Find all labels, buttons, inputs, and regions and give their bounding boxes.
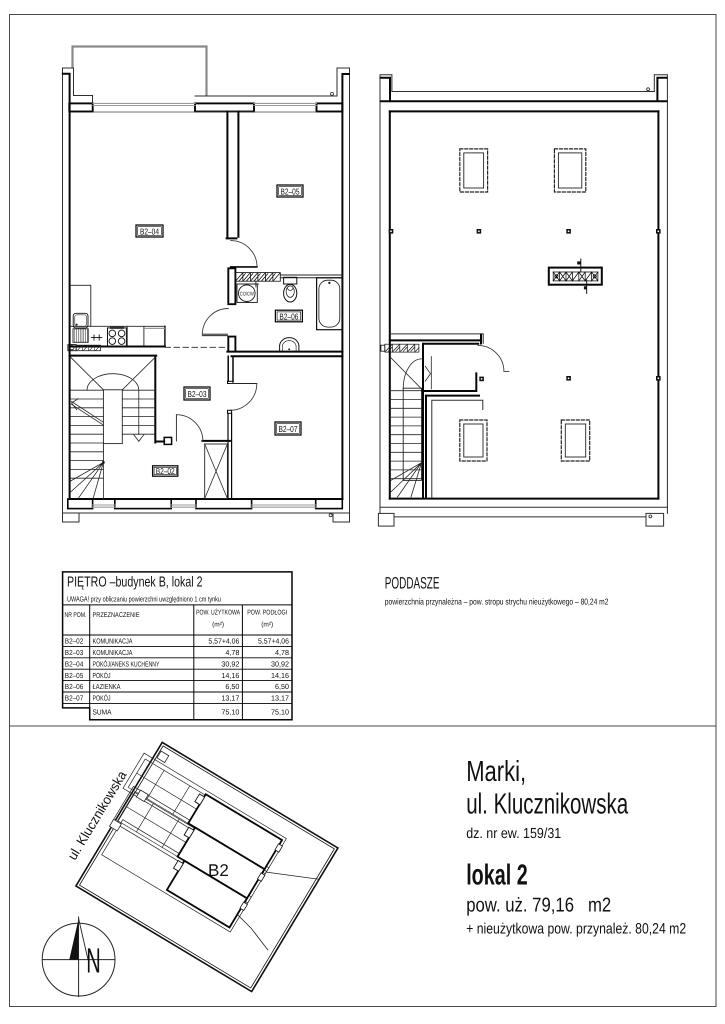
- svg-text:B2–07: B2–07: [65, 694, 84, 703]
- svg-text:B2–02: B2–02: [65, 637, 84, 646]
- svg-text:14,16: 14,16: [221, 671, 239, 680]
- svg-text:ul. Klucznikowska: ul. Klucznikowska: [466, 789, 629, 821]
- svg-text:PODDASZE: PODDASZE: [385, 575, 440, 593]
- svg-text:POW. PODŁOGI: POW. PODŁOGI: [247, 610, 287, 617]
- svg-text:30,92: 30,92: [271, 659, 289, 668]
- svg-text:B2–04: B2–04: [140, 226, 159, 236]
- svg-text:B2: B2: [208, 861, 229, 880]
- svg-text:POKÓJ/ANEKS KUCHENNY: POKÓJ/ANEKS KUCHENNY: [93, 659, 160, 668]
- svg-text:(m²): (m²): [261, 622, 273, 629]
- svg-text:B2–03: B2–03: [188, 389, 207, 399]
- svg-text:CO/CW: CO/CW: [240, 291, 255, 297]
- svg-text:POW. UŻYTKOWA: POW. UŻYTKOWA: [196, 609, 240, 617]
- svg-text:B2–02: B2–02: [156, 466, 175, 476]
- svg-text:5,57+4,06: 5,57+4,06: [208, 637, 239, 646]
- svg-text:lokal 2: lokal 2: [466, 860, 528, 892]
- svg-text:pow. uż. 79,16 m2: pow. uż. 79,16 m2: [466, 895, 611, 917]
- svg-text:4,78: 4,78: [275, 648, 289, 657]
- svg-text:6,50: 6,50: [275, 682, 289, 691]
- svg-text:13,17: 13,17: [271, 694, 289, 703]
- svg-text:B2–04: B2–04: [65, 659, 84, 668]
- svg-text:dz. nr ew. 159/31: dz. nr ew. 159/31: [466, 826, 561, 842]
- svg-text:+ nieużytkowa pow. przynależ.: + nieużytkowa pow. przynależ. 80,24 m2: [466, 921, 686, 938]
- svg-text:PRZEZNACZENIE: PRZEZNACZENIE: [93, 612, 140, 619]
- svg-text:ŁAZIENKA: ŁAZIENKA: [93, 682, 121, 691]
- svg-text:NR POM.: NR POM.: [65, 612, 87, 619]
- svg-text:14,16: 14,16: [271, 671, 289, 680]
- svg-text:B2–06: B2–06: [65, 682, 84, 691]
- svg-text:B2–05: B2–05: [65, 671, 84, 680]
- svg-text:Marki,: Marki,: [466, 756, 526, 788]
- svg-text:30,92: 30,92: [221, 659, 239, 668]
- svg-text:B2–03: B2–03: [65, 648, 84, 657]
- svg-text:powierzchnia przynależna – pow: powierzchnia przynależna – pow. stropu s…: [385, 597, 609, 607]
- svg-text:6,50: 6,50: [225, 682, 239, 691]
- svg-text:75,10: 75,10: [271, 708, 289, 717]
- svg-text:POKÓJ: POKÓJ: [93, 694, 111, 703]
- svg-text:75,10: 75,10: [221, 708, 239, 717]
- svg-text:POKÓJ: POKÓJ: [93, 671, 111, 680]
- svg-text:13,17: 13,17: [221, 694, 239, 703]
- svg-text:B2–05: B2–05: [281, 186, 300, 196]
- svg-text:UWAGA! przy obliczaniu powierz: UWAGA! przy obliczaniu powierzchni uwzgl…: [67, 595, 221, 604]
- svg-text:4,78: 4,78: [225, 648, 239, 657]
- svg-text:SUMA: SUMA: [93, 708, 112, 717]
- svg-text:PIĘTRO –budynek B, lokal 2: PIĘTRO –budynek B, lokal 2: [67, 575, 203, 591]
- svg-text:B2–06: B2–06: [279, 311, 298, 321]
- svg-text:N: N: [86, 942, 101, 981]
- svg-text:B2–07: B2–07: [279, 424, 298, 434]
- svg-text:KOMUNIKACJA: KOMUNIKACJA: [93, 648, 133, 657]
- svg-text:KOMUNIKACJA: KOMUNIKACJA: [93, 637, 133, 646]
- svg-text:(m²): (m²): [212, 622, 224, 629]
- svg-text:5,57+4,06: 5,57+4,06: [258, 637, 289, 646]
